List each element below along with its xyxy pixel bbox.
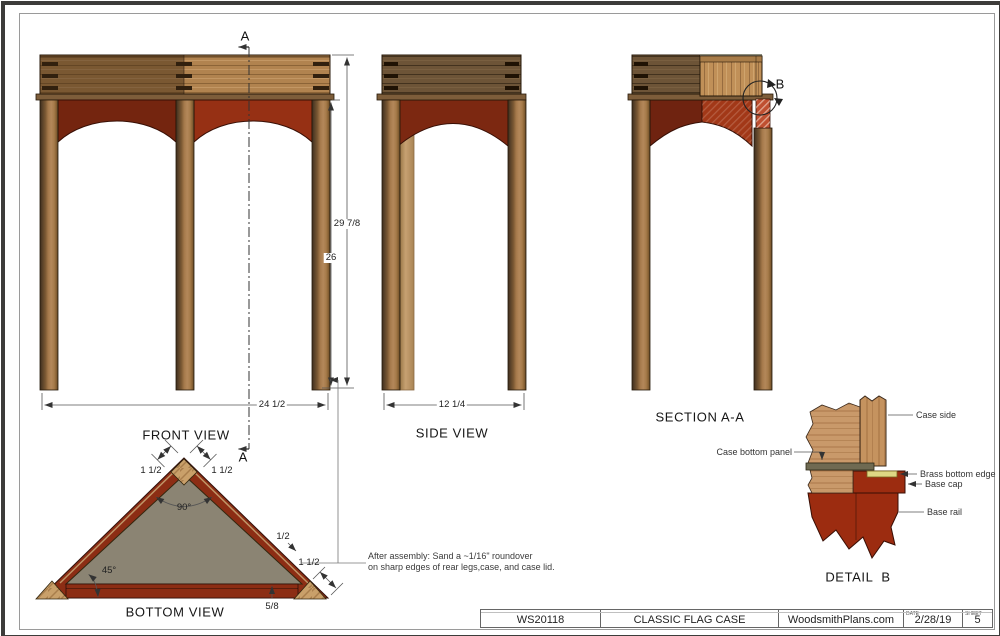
side-view-label: SIDE VIEW xyxy=(416,426,489,441)
dim-side-width: 12 1/4 xyxy=(437,400,467,410)
side-view-geometry xyxy=(377,55,526,390)
dim-front-width: 24 1/2 xyxy=(257,400,287,410)
section-view-geometry xyxy=(628,54,783,390)
dim-bottom-edge-left: 1 1/2 xyxy=(138,466,163,476)
title-block-title: CLASSIC FLAG CASE xyxy=(600,610,778,627)
assembly-note-line1: After assembly: Sand a ~1/16" roundover xyxy=(368,551,555,562)
dim-bottom-corner-block: 1 1/2 xyxy=(296,558,321,568)
title-block-sheet-label: SHEET xyxy=(965,612,982,617)
drawing-artwork xyxy=(0,0,1000,636)
front-view-label: FRONT VIEW xyxy=(142,428,229,443)
section-marker-a-top: A xyxy=(241,29,250,44)
assembly-note: After assembly: Sand a ~1/16" roundover … xyxy=(368,551,555,573)
dim-bottom-side-thickness: 1/2 xyxy=(274,532,291,542)
callout-case-bottom-panel: Case bottom panel xyxy=(716,447,792,457)
title-block-website: WoodsmithPlans.com xyxy=(778,610,903,627)
callout-base-rail: Base rail xyxy=(927,507,962,517)
detail-view-label: DETAIL B xyxy=(825,570,890,585)
detail-marker-b: B xyxy=(776,77,785,92)
callout-base-cap: Base cap xyxy=(925,479,963,489)
section-view-label: SECTION A-A xyxy=(656,410,745,425)
dim-bottom-edge-right: 1 1/2 xyxy=(209,466,234,476)
title-block-date-label: DATE xyxy=(906,612,919,617)
bottom-view-geometry xyxy=(36,458,328,599)
note-leaders xyxy=(302,380,366,563)
front-view-geometry xyxy=(36,55,334,390)
section-marker-a-bottom: A xyxy=(239,450,248,465)
dim-front-total-height: 29 7/8 xyxy=(332,219,362,229)
title-block-sheet-cell: SHEET 5 xyxy=(962,610,992,627)
title-block-date-cell: DATE 2/28/19 xyxy=(903,610,962,627)
detail-b-geometry xyxy=(806,396,905,558)
dim-bottom-base-angle: 45° xyxy=(100,566,118,576)
bottom-view-label: BOTTOM VIEW xyxy=(126,605,225,620)
drawing-sheet: A A B 29 7/8 26 24 1/2 12 1/4 1 1/2 1 1/… xyxy=(0,0,1000,636)
dim-bottom-base-thickness: 5/8 xyxy=(263,602,280,612)
title-block-plan-number: WS20118 xyxy=(481,610,600,627)
callout-case-side: Case side xyxy=(916,410,956,420)
dim-bottom-apex-angle: 90° xyxy=(175,503,193,513)
assembly-note-line2: on sharp edges of rear legs,case, and ca… xyxy=(368,562,555,573)
callout-brass-bottom-edge: Brass bottom edge xyxy=(920,469,996,479)
title-block-date: 2/28/19 xyxy=(915,614,952,626)
title-block: WS20118 CLASSIC FLAG CASE WoodsmithPlans… xyxy=(480,609,993,628)
dim-front-leg-height: 26 xyxy=(324,253,339,263)
